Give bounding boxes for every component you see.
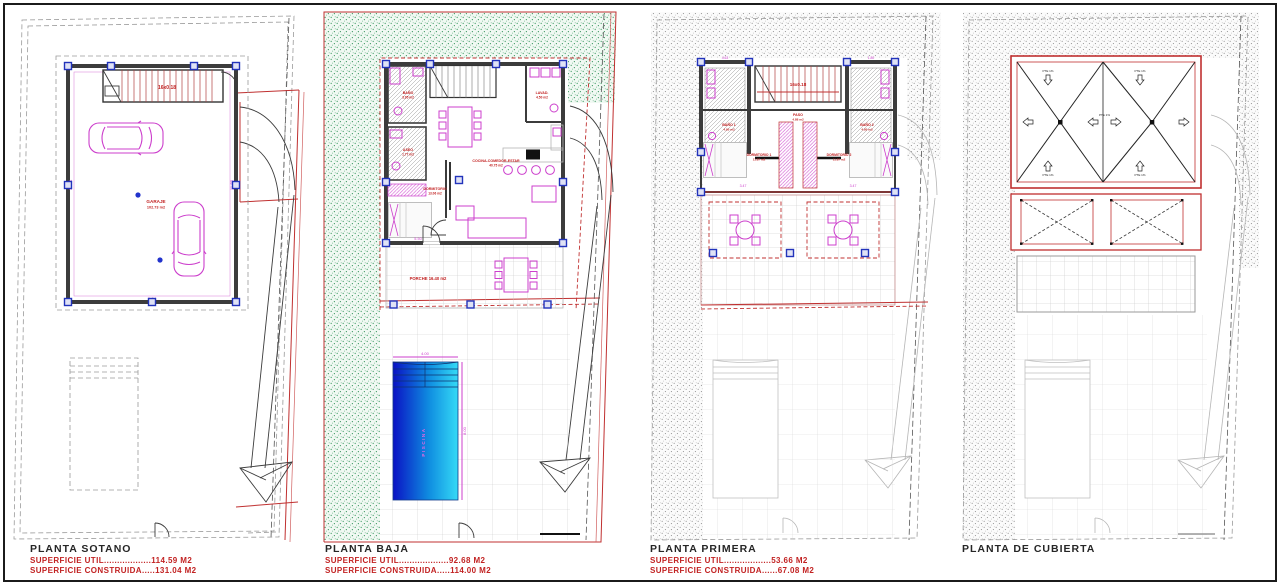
slope-label: PTE 1% — [1134, 69, 1145, 73]
aseo-label: ASEO — [403, 148, 413, 152]
living-label: COCINA-COMEDOR-ESTAR — [472, 159, 520, 163]
room-area: 102.73 m2 — [147, 206, 165, 210]
flat-roofs — [1011, 194, 1201, 250]
pool-dim-w: 4.00 — [421, 351, 430, 356]
drain-dot — [157, 257, 162, 262]
slope-label: PTE 1% — [1042, 173, 1053, 177]
wardrobe — [803, 122, 817, 188]
bath-area: 3.95 m2 — [402, 96, 414, 100]
bath2-area: 4.95 m2 — [861, 128, 873, 132]
stairs — [430, 66, 496, 99]
plan-title: PLANTA DE CUBIERTA — [962, 543, 1095, 556]
laundry-area: 4.50 m2 — [536, 96, 548, 100]
bathroom: BAÑO 3.95 m2 — [388, 66, 426, 123]
garage: 16x0.18 GARAJE 102.73 m2 8.24 11.80 10.7… — [65, 63, 240, 306]
bedroom-dim: 5.50 — [414, 237, 421, 241]
hall-label: PASO — [793, 113, 803, 117]
bedroom-label: DORMITORIO — [423, 187, 446, 191]
bath1-label: BAÑO 1 — [722, 122, 736, 127]
terrace — [701, 195, 928, 309]
bed — [850, 143, 893, 178]
wardrobe — [388, 184, 426, 196]
dim-top1: 4.63 — [722, 56, 729, 60]
dorm1-label: DORMITORIO 1 — [747, 153, 772, 157]
plan-title: PLANTA PRIMERA — [650, 543, 814, 556]
bath1: BAÑO 1 4.95 m2 4.63 — [701, 56, 749, 152]
bath2: BAÑO 2 4.95 m2 1.80 — [847, 56, 895, 152]
plan-sheet: 16x0.18 GARAJE 102.73 m2 8.24 11.80 10.7… — [0, 0, 1280, 585]
superficie-construida: SUPERFICIE CONSTRUIDA......67.08 M2 — [650, 566, 814, 576]
plan-title: PLANTA BAJA — [325, 543, 491, 556]
wardrobe — [779, 122, 793, 188]
pool-outline-dashed — [70, 358, 138, 490]
house: BAÑO 3.95 m2 ASEO 1.77 m2 DORMITORIO 13.… — [383, 61, 567, 247]
lower-faint — [1013, 315, 1215, 538]
dorm2-area: 11.87 m2 — [833, 158, 846, 162]
pool-label: PISCINA — [421, 427, 426, 456]
stairs: 16x0.18 — [103, 70, 223, 102]
porch-roof-grid — [1017, 256, 1195, 312]
superficie-construida: SUPERFICIE CONSTRUIDA.....131.04 M2 — [30, 566, 196, 576]
aseo: ASEO 1.77 m2 — [388, 127, 426, 180]
bath-label: BAÑO — [403, 90, 414, 95]
slope-label: PTE 1% — [1042, 69, 1053, 73]
plan-baja-drawing: PORCHE 16.40 m2 PISCINA 4.00 8.00 — [318, 10, 625, 545]
laundry-label: LAVAD. — [536, 91, 549, 95]
hall-area: 4.88 m2 — [792, 118, 804, 122]
living-area: 40.75 m2 — [489, 164, 503, 168]
pool: PISCINA 4.00 8.00 — [393, 351, 467, 500]
bedroom-area: 13.06 m2 — [428, 192, 442, 196]
aseo-area: 1.77 m2 — [402, 153, 414, 157]
dorm1-area: 11.87 m2 — [753, 158, 766, 162]
dim2: 3.47 — [850, 184, 857, 188]
pool-dim-h: 8.00 — [462, 426, 467, 435]
superficie-util: SUPERFICIE UTIL..................114.59 … — [30, 556, 196, 566]
caption-primera: PLANTA PRIMERA SUPERFICIE UTIL..........… — [650, 543, 814, 576]
plan-title: PLANTA SOTANO — [30, 543, 196, 556]
porch: PORCHE 16.40 m2 — [386, 243, 563, 308]
superficie-util: SUPERFICIE UTIL..................53.66 M… — [650, 556, 814, 566]
house: BAÑO 1 4.95 m2 4.63 BAÑO 2 4.95 m2 1.80 — [698, 56, 899, 196]
plan-primera-drawing: BAÑO 1 4.95 m2 4.63 BAÑO 2 4.95 m2 1.80 — [643, 10, 950, 545]
plan-cubierta-drawing: PTE 1% PTE 1% PTE 1% PTE 1% PTE 1% — [953, 10, 1275, 545]
dim-top2: 1.80 — [868, 56, 875, 60]
room-label: GARAJE — [146, 199, 165, 204]
dim1: 3.47 — [740, 184, 747, 188]
caption-sotano: PLANTA SOTANO SUPERFICIE UTIL...........… — [30, 543, 196, 576]
caption-baja: PLANTA BAJA SUPERFICIE UTIL.............… — [325, 543, 491, 576]
drain-dot — [135, 192, 140, 197]
bath2-label: BAÑO 2 — [860, 122, 874, 127]
bed — [389, 203, 432, 238]
roof: PTE 1% PTE 1% PTE 1% PTE 1% PTE 1% — [1011, 56, 1201, 188]
lower-faint — [701, 310, 895, 538]
bath1-area: 4.95 m2 — [723, 128, 735, 132]
slope-label: PTE 1% — [1099, 113, 1110, 117]
superficie-construida: SUPERFICIE CONSTRUIDA.....114.00 M2 — [325, 566, 491, 576]
stair-label: 16x0.18 — [790, 82, 807, 87]
superficie-util: SUPERFICIE UTIL...................92.68 … — [325, 556, 491, 566]
porch-label: PORCHE 16.40 m2 — [410, 276, 447, 281]
ramp-red-edges — [236, 90, 304, 542]
plan-sotano-drawing: 16x0.18 GARAJE 102.73 m2 8.24 11.80 10.7… — [8, 10, 310, 545]
caption-cubierta: PLANTA DE CUBIERTA — [962, 543, 1095, 556]
slope-label: PTE 1% — [1134, 173, 1145, 177]
stair-label: 16x0.18 — [158, 85, 176, 91]
bed — [704, 143, 747, 178]
entrance-door — [155, 523, 276, 537]
ramp-arrow — [240, 462, 292, 502]
dorm2-label: DORMITORIO 2 — [827, 153, 852, 157]
stairs: 16x0.18 — [755, 66, 841, 102]
